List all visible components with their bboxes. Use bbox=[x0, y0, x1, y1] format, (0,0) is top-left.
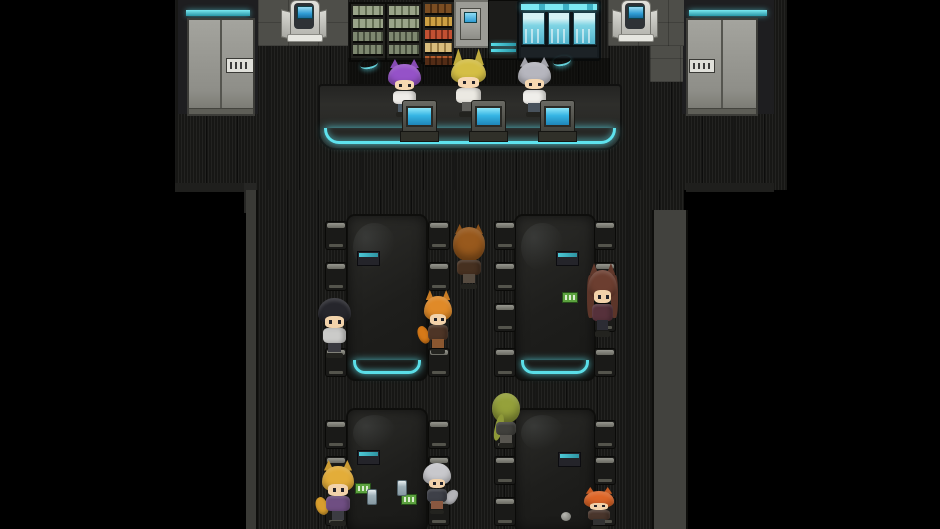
chair[interactable] bbox=[428, 262, 450, 291]
shelf-row bbox=[389, 32, 419, 43]
green-card-text bbox=[565, 295, 575, 300]
chair-backrest bbox=[596, 223, 614, 228]
chair[interactable] bbox=[325, 420, 347, 449]
cabinet-teal-line bbox=[491, 49, 516, 52]
shelf-row bbox=[425, 17, 452, 28]
chair-base bbox=[598, 479, 612, 482]
chair-backrest bbox=[496, 223, 514, 228]
chair-base bbox=[498, 371, 512, 374]
patron-green-back[interactable] bbox=[492, 390, 520, 448]
chair-backrest bbox=[327, 422, 345, 427]
chair-base bbox=[498, 285, 512, 288]
dark-cabinet bbox=[488, 0, 519, 60]
supply-shelf-2 bbox=[385, 2, 423, 62]
chair[interactable] bbox=[325, 262, 347, 291]
face bbox=[430, 314, 447, 325]
chair-base bbox=[329, 244, 343, 247]
shelf-row bbox=[425, 30, 452, 41]
chair[interactable] bbox=[428, 420, 450, 449]
display-case-door bbox=[573, 12, 596, 45]
shoes bbox=[431, 349, 446, 354]
chair-backrest bbox=[596, 422, 614, 427]
chair[interactable] bbox=[428, 221, 450, 250]
chair-base bbox=[432, 520, 446, 523]
display-case-glass bbox=[522, 12, 596, 45]
wall-terminal-screen bbox=[464, 12, 477, 23]
display-case[interactable] bbox=[517, 0, 601, 61]
torso bbox=[588, 510, 610, 520]
face bbox=[395, 80, 415, 90]
supply-shelf-1 bbox=[349, 2, 387, 62]
chair[interactable] bbox=[494, 303, 516, 332]
torso bbox=[457, 260, 480, 275]
menu-sign-screen bbox=[359, 253, 378, 257]
eyes bbox=[594, 505, 597, 507]
table-edge-light bbox=[353, 360, 421, 374]
eyes bbox=[529, 83, 532, 86]
chair-backrest bbox=[496, 458, 514, 463]
shelf-row bbox=[389, 45, 419, 56]
chair-base bbox=[432, 285, 446, 288]
chair-backrest bbox=[430, 422, 448, 427]
legs bbox=[328, 343, 341, 352]
legs bbox=[593, 519, 605, 525]
menu-sign[interactable] bbox=[357, 251, 380, 266]
shelf-row bbox=[353, 6, 383, 17]
shoes bbox=[326, 353, 343, 358]
game-viewport[interactable] bbox=[0, 0, 940, 529]
cash-register-3[interactable] bbox=[540, 100, 575, 142]
legs bbox=[463, 274, 476, 283]
table-bottom-left bbox=[346, 408, 428, 529]
cash-register-1[interactable] bbox=[402, 100, 437, 142]
chair-backrest bbox=[430, 223, 448, 228]
cash-register-2[interactable] bbox=[471, 100, 506, 142]
face bbox=[525, 79, 545, 89]
door-right-seam bbox=[721, 20, 723, 114]
chair-backrest bbox=[496, 350, 514, 355]
display-case-door bbox=[522, 12, 545, 45]
chair-base bbox=[432, 244, 446, 247]
wall-terminal-device[interactable] bbox=[460, 8, 481, 40]
patron-silver-tail[interactable] bbox=[423, 458, 451, 514]
kiosk-base bbox=[287, 34, 323, 42]
face bbox=[328, 484, 347, 495]
shelf-row bbox=[353, 32, 383, 43]
chair[interactable] bbox=[494, 456, 516, 485]
shoes bbox=[430, 510, 445, 514]
patron-wolf-back[interactable] bbox=[453, 224, 485, 289]
seating-wall-left bbox=[246, 190, 258, 529]
legs bbox=[597, 320, 609, 330]
table-edge-light bbox=[521, 360, 589, 374]
wall-band-right-step bbox=[650, 46, 683, 82]
shelf-row bbox=[353, 45, 383, 56]
chair[interactable] bbox=[494, 221, 516, 250]
eyes bbox=[399, 84, 402, 87]
door-left-sign-glyphs bbox=[230, 62, 250, 69]
legs bbox=[432, 339, 443, 348]
chair-backrest bbox=[596, 350, 614, 355]
door-right-light bbox=[689, 10, 767, 16]
door-left-sign bbox=[226, 58, 254, 73]
chair-backrest bbox=[327, 264, 345, 269]
chair[interactable] bbox=[494, 348, 516, 377]
register-base bbox=[400, 131, 439, 142]
door-right-sign bbox=[689, 59, 715, 73]
door-left-track bbox=[189, 108, 253, 114]
eyes bbox=[433, 482, 436, 485]
menu-sign[interactable] bbox=[558, 452, 581, 467]
register-screen bbox=[406, 106, 433, 127]
kiosk-base bbox=[618, 34, 654, 42]
patron-black-hair[interactable] bbox=[318, 292, 351, 358]
legs bbox=[431, 501, 442, 509]
eyes bbox=[463, 81, 466, 84]
torso bbox=[592, 304, 613, 321]
shelf-row bbox=[353, 19, 383, 30]
chair[interactable] bbox=[594, 348, 616, 377]
face bbox=[590, 503, 608, 510]
register-base bbox=[469, 131, 508, 142]
chair-base bbox=[432, 371, 446, 374]
chair-backrest bbox=[430, 264, 448, 269]
door-right-sign-glyphs bbox=[693, 63, 711, 69]
drink-can bbox=[397, 480, 407, 496]
kiosk-left-terminal[interactable] bbox=[281, 0, 327, 42]
seating-wall-right bbox=[652, 210, 688, 529]
menu-sign[interactable] bbox=[357, 450, 380, 465]
green-table-card bbox=[562, 292, 578, 303]
chair-backrest bbox=[496, 264, 514, 269]
patron-gold-fox[interactable] bbox=[322, 460, 354, 526]
eyes bbox=[329, 320, 332, 323]
torso bbox=[326, 496, 349, 511]
chair-base bbox=[329, 443, 343, 446]
green-card-text bbox=[404, 497, 414, 502]
chair[interactable] bbox=[494, 262, 516, 291]
display-case-light bbox=[521, 4, 597, 10]
chair[interactable] bbox=[594, 420, 616, 449]
table-top-left bbox=[346, 214, 428, 381]
eyes bbox=[333, 488, 336, 491]
door-left-light bbox=[186, 10, 250, 16]
bottles bbox=[551, 29, 568, 43]
shelf-row bbox=[389, 6, 419, 17]
chair-base bbox=[498, 326, 512, 329]
chair-base bbox=[329, 285, 343, 288]
patron-red-panda[interactable] bbox=[584, 487, 614, 529]
shoes bbox=[499, 443, 514, 448]
register-screen bbox=[475, 106, 502, 127]
shelf-row bbox=[425, 43, 452, 54]
shelf-row bbox=[425, 4, 452, 15]
kiosk-screen bbox=[628, 6, 644, 19]
chair-backrest bbox=[596, 458, 614, 463]
chair-base bbox=[598, 371, 612, 374]
shop-edge-right bbox=[686, 183, 774, 192]
torso bbox=[428, 325, 448, 340]
door-left-seam bbox=[220, 20, 222, 114]
chair-base bbox=[432, 443, 446, 446]
chair[interactable] bbox=[325, 221, 347, 250]
torso bbox=[323, 328, 347, 343]
menu-sign[interactable] bbox=[556, 251, 579, 266]
patron-brunette[interactable] bbox=[588, 263, 617, 337]
display-case-base bbox=[521, 45, 597, 57]
patron-orange-fox[interactable] bbox=[424, 290, 452, 354]
menu-sign-screen bbox=[359, 452, 378, 456]
register-screen bbox=[544, 106, 571, 127]
torso bbox=[496, 422, 516, 435]
eyes bbox=[434, 318, 437, 321]
chair-backrest bbox=[327, 223, 345, 228]
torso bbox=[427, 489, 447, 502]
table-surface-sheen bbox=[521, 415, 564, 451]
table-top-right bbox=[514, 214, 596, 381]
kiosk-right-terminal[interactable] bbox=[612, 0, 658, 42]
chair-base bbox=[598, 443, 612, 446]
drink-can bbox=[367, 489, 377, 505]
face bbox=[429, 479, 446, 489]
small-object bbox=[561, 512, 571, 521]
chair-base bbox=[598, 244, 612, 247]
hair bbox=[453, 227, 485, 261]
shelf-row bbox=[389, 19, 419, 30]
face bbox=[594, 290, 611, 303]
register-base bbox=[538, 131, 577, 142]
menu-sign-screen bbox=[560, 454, 579, 458]
shoes bbox=[461, 284, 478, 289]
chair[interactable] bbox=[494, 497, 516, 526]
table-surface-sheen bbox=[353, 415, 396, 451]
chair[interactable] bbox=[594, 456, 616, 485]
chair-base bbox=[498, 244, 512, 247]
chair-backrest bbox=[496, 305, 514, 310]
shoes bbox=[591, 526, 607, 529]
chair-backrest bbox=[496, 499, 514, 504]
chair-base bbox=[329, 371, 343, 374]
kiosk-screen bbox=[297, 6, 313, 19]
display-case-door bbox=[548, 12, 571, 45]
menu-sign-screen bbox=[558, 253, 577, 257]
legs bbox=[332, 511, 345, 520]
shoes bbox=[595, 331, 610, 337]
face bbox=[458, 77, 479, 88]
shop-edge-left bbox=[175, 183, 253, 192]
cabinet-teal-line bbox=[491, 43, 516, 46]
legs bbox=[500, 435, 511, 443]
chair-base bbox=[498, 520, 512, 523]
bottles bbox=[576, 29, 593, 43]
face bbox=[325, 316, 345, 327]
bottles bbox=[525, 29, 542, 43]
eyes bbox=[598, 295, 601, 299]
shoes bbox=[330, 521, 347, 526]
chair-base bbox=[498, 479, 512, 482]
chair[interactable] bbox=[594, 221, 616, 250]
door-right-track bbox=[688, 108, 756, 114]
